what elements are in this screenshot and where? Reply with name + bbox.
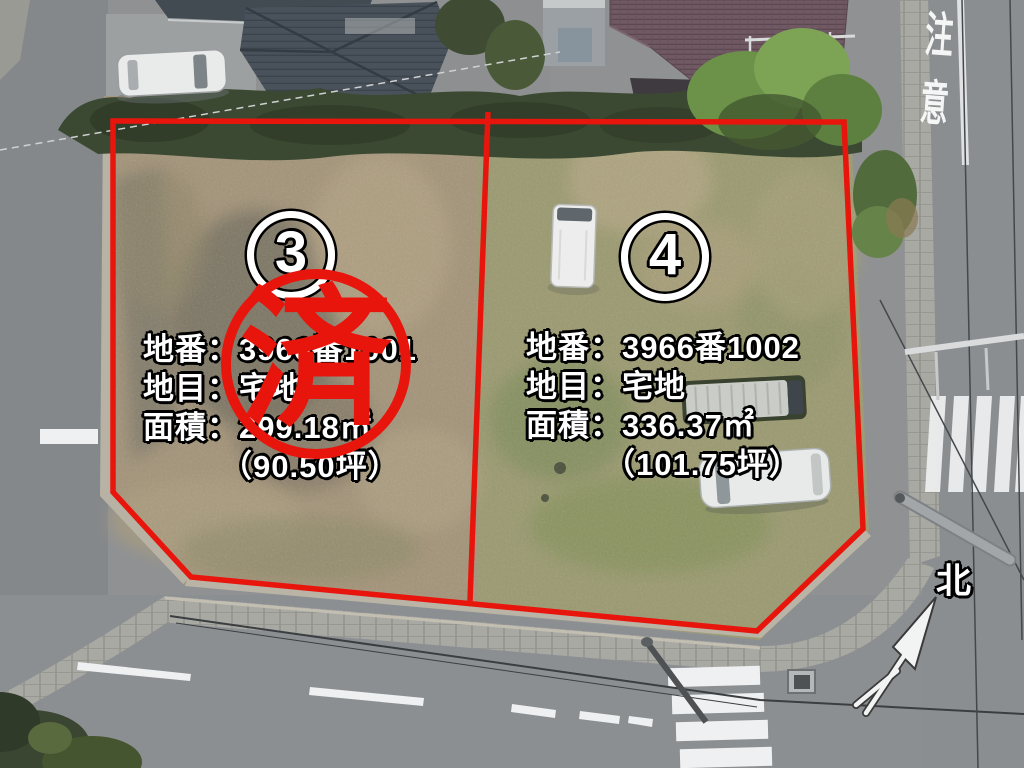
aerial-photo-scene: 3 4 地番：3966番1001 地目：宅地 面積：299.18㎡ （90.50…: [0, 0, 1024, 768]
building-panel: [558, 28, 592, 62]
sold-stamp: 済: [221, 269, 411, 459]
building-trim: [543, 0, 605, 8]
lot4-info: 地番：3966番1002 地目：宅地 面積：336.37㎡ （101.75坪）: [526, 328, 801, 484]
lot4-land-category: 地目：宅地: [526, 367, 801, 406]
manhole: [788, 670, 815, 693]
wall-bit: [345, 18, 415, 34]
white-van-lot4: [547, 204, 602, 296]
lot4-number-badge: 4: [621, 213, 709, 301]
sold-stamp-text: 済: [240, 284, 392, 436]
lot3-area-tsubo: （90.50坪）: [143, 447, 417, 486]
parked-car-street: [115, 49, 230, 106]
lot4-parcel-number: 地番：3966番1002: [526, 328, 801, 367]
lot4-number: 4: [649, 226, 681, 284]
north-label: 北: [936, 553, 971, 604]
lot4-area-tsubo: （101.75坪）: [526, 445, 801, 484]
stop-line-left-road: [40, 429, 98, 444]
lot4-area: 面積：336.37㎡: [526, 406, 801, 445]
